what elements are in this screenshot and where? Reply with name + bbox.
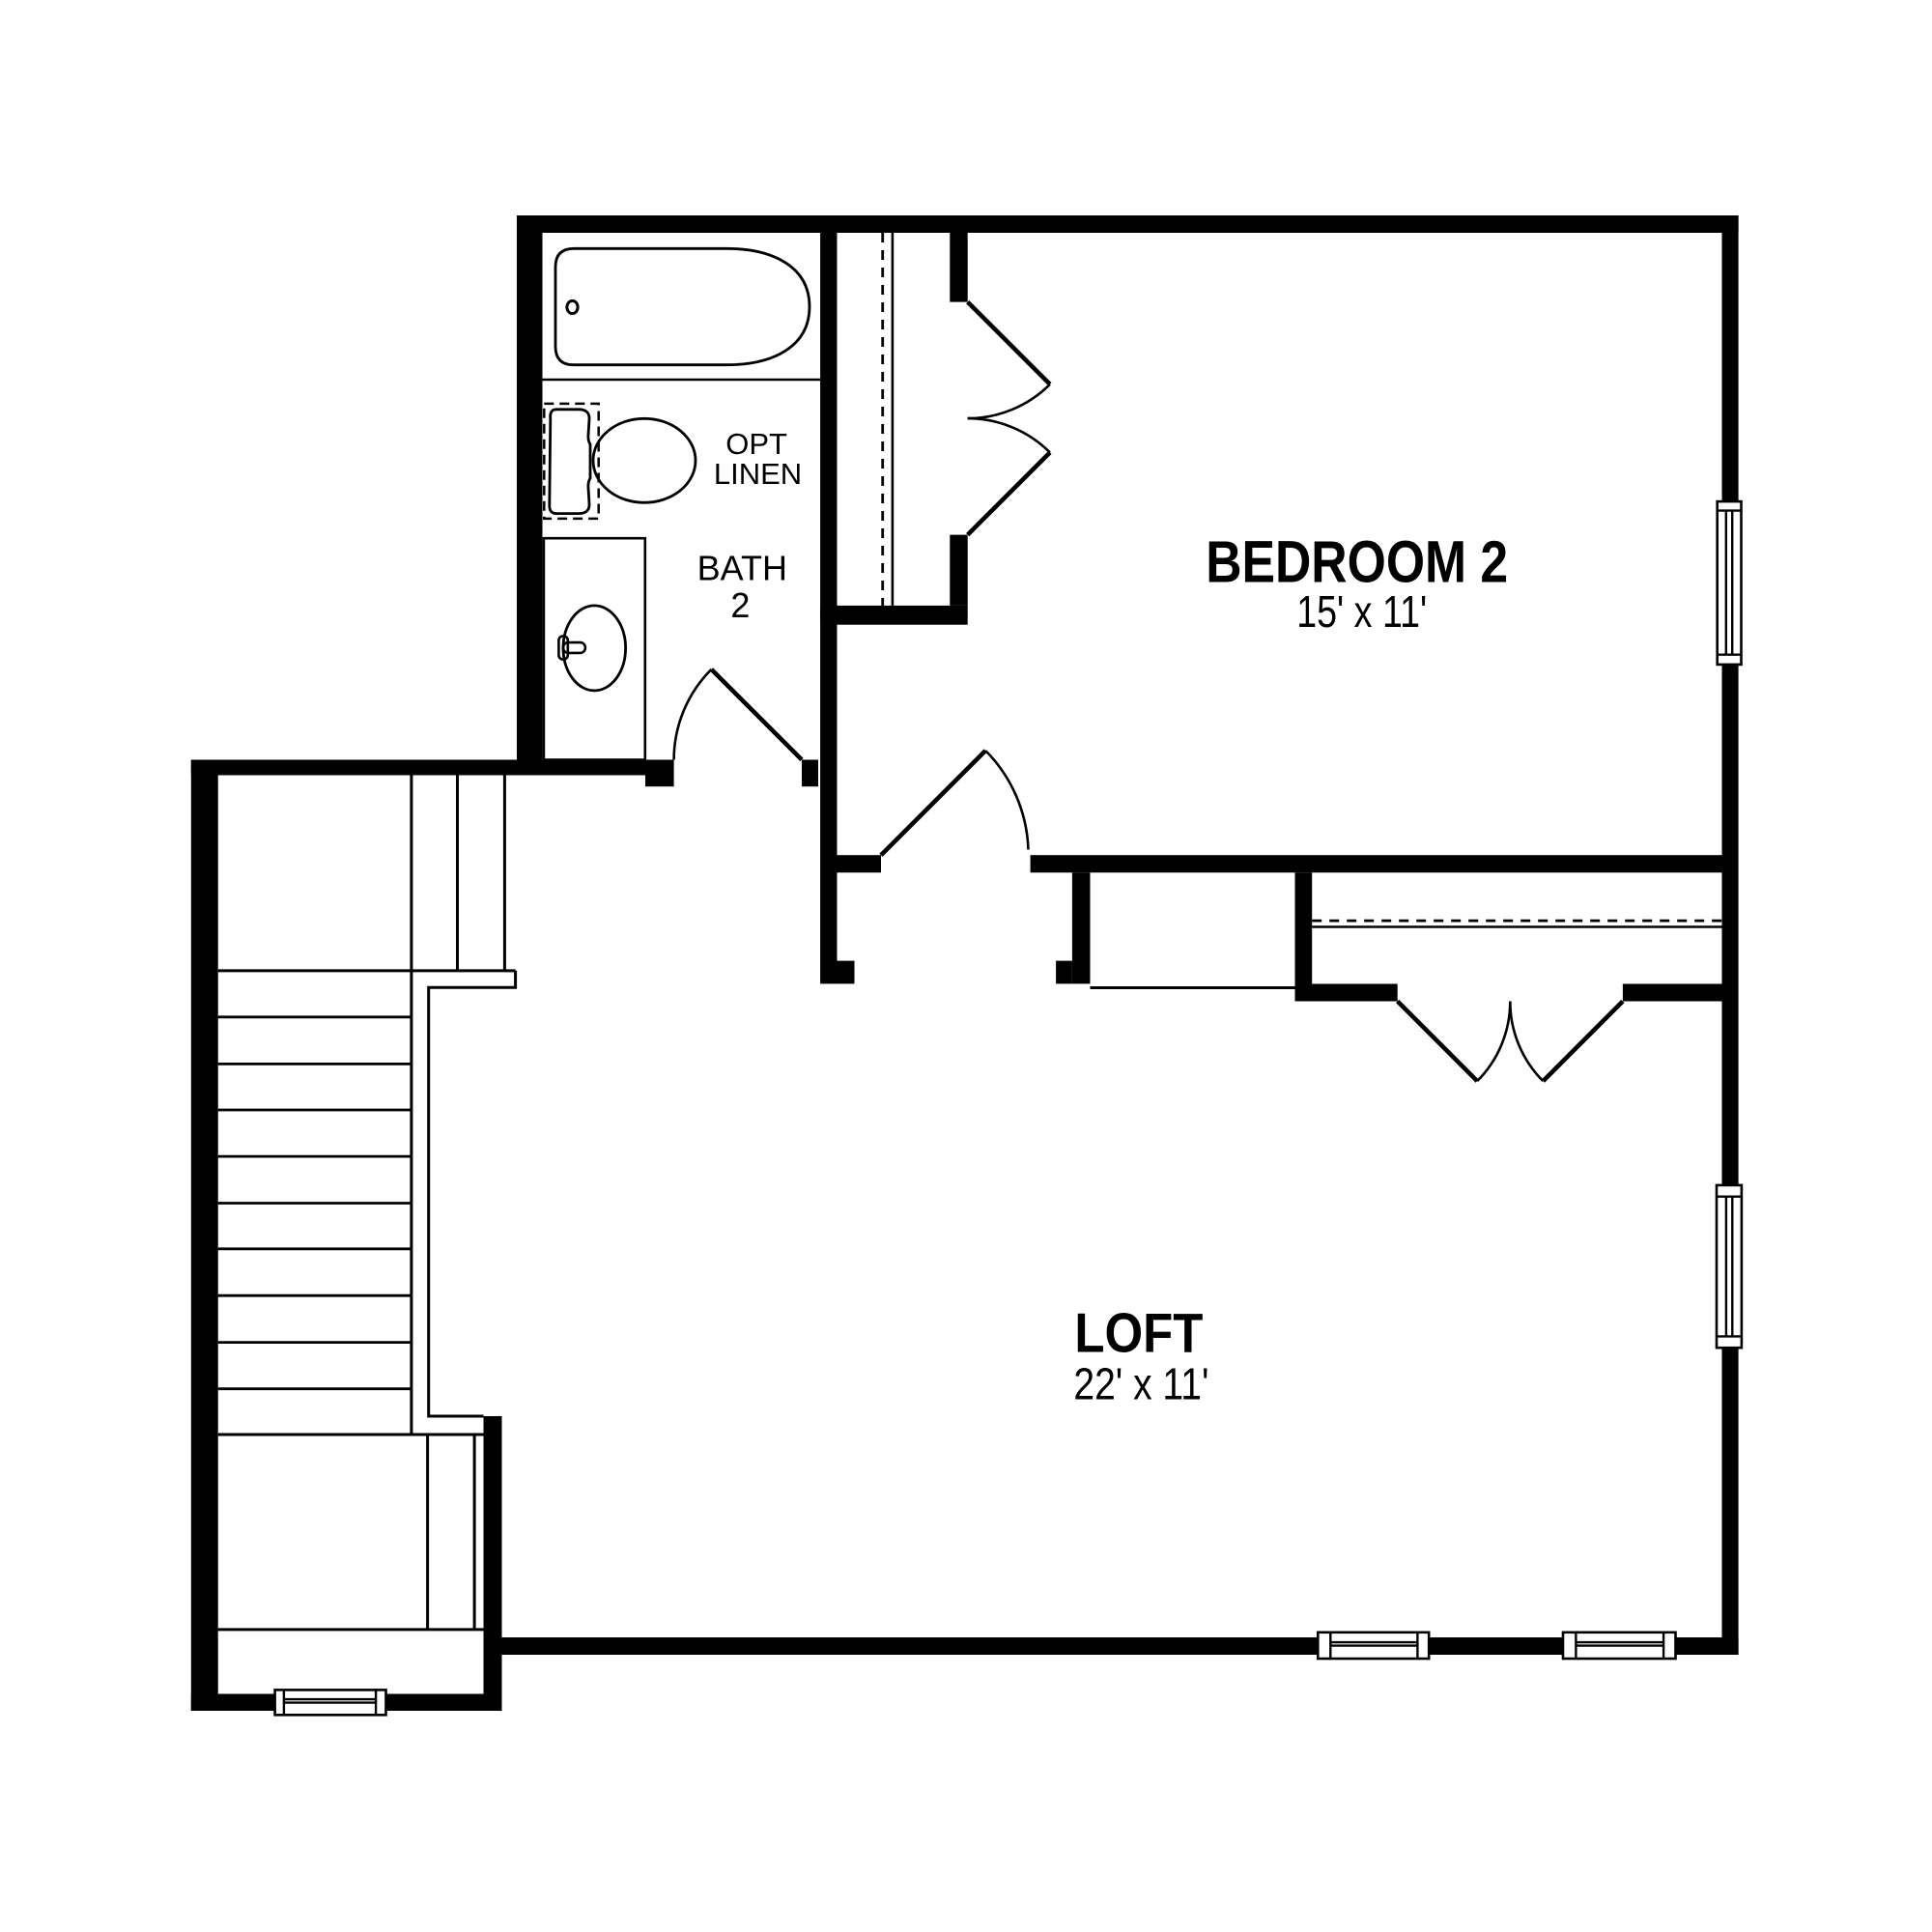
svg-text:22' x 11': 22' x 11'	[1073, 1359, 1208, 1409]
svg-text:BATH: BATH	[697, 549, 787, 588]
svg-text:OPT: OPT	[725, 427, 787, 461]
svg-text:LINEN: LINEN	[714, 457, 802, 491]
svg-text:15' x 11': 15' x 11'	[1296, 586, 1427, 637]
svg-text:2: 2	[730, 585, 750, 625]
svg-text:BEDROOM 2: BEDROOM 2	[1206, 529, 1508, 595]
svg-text:LOFT: LOFT	[1074, 1303, 1203, 1365]
